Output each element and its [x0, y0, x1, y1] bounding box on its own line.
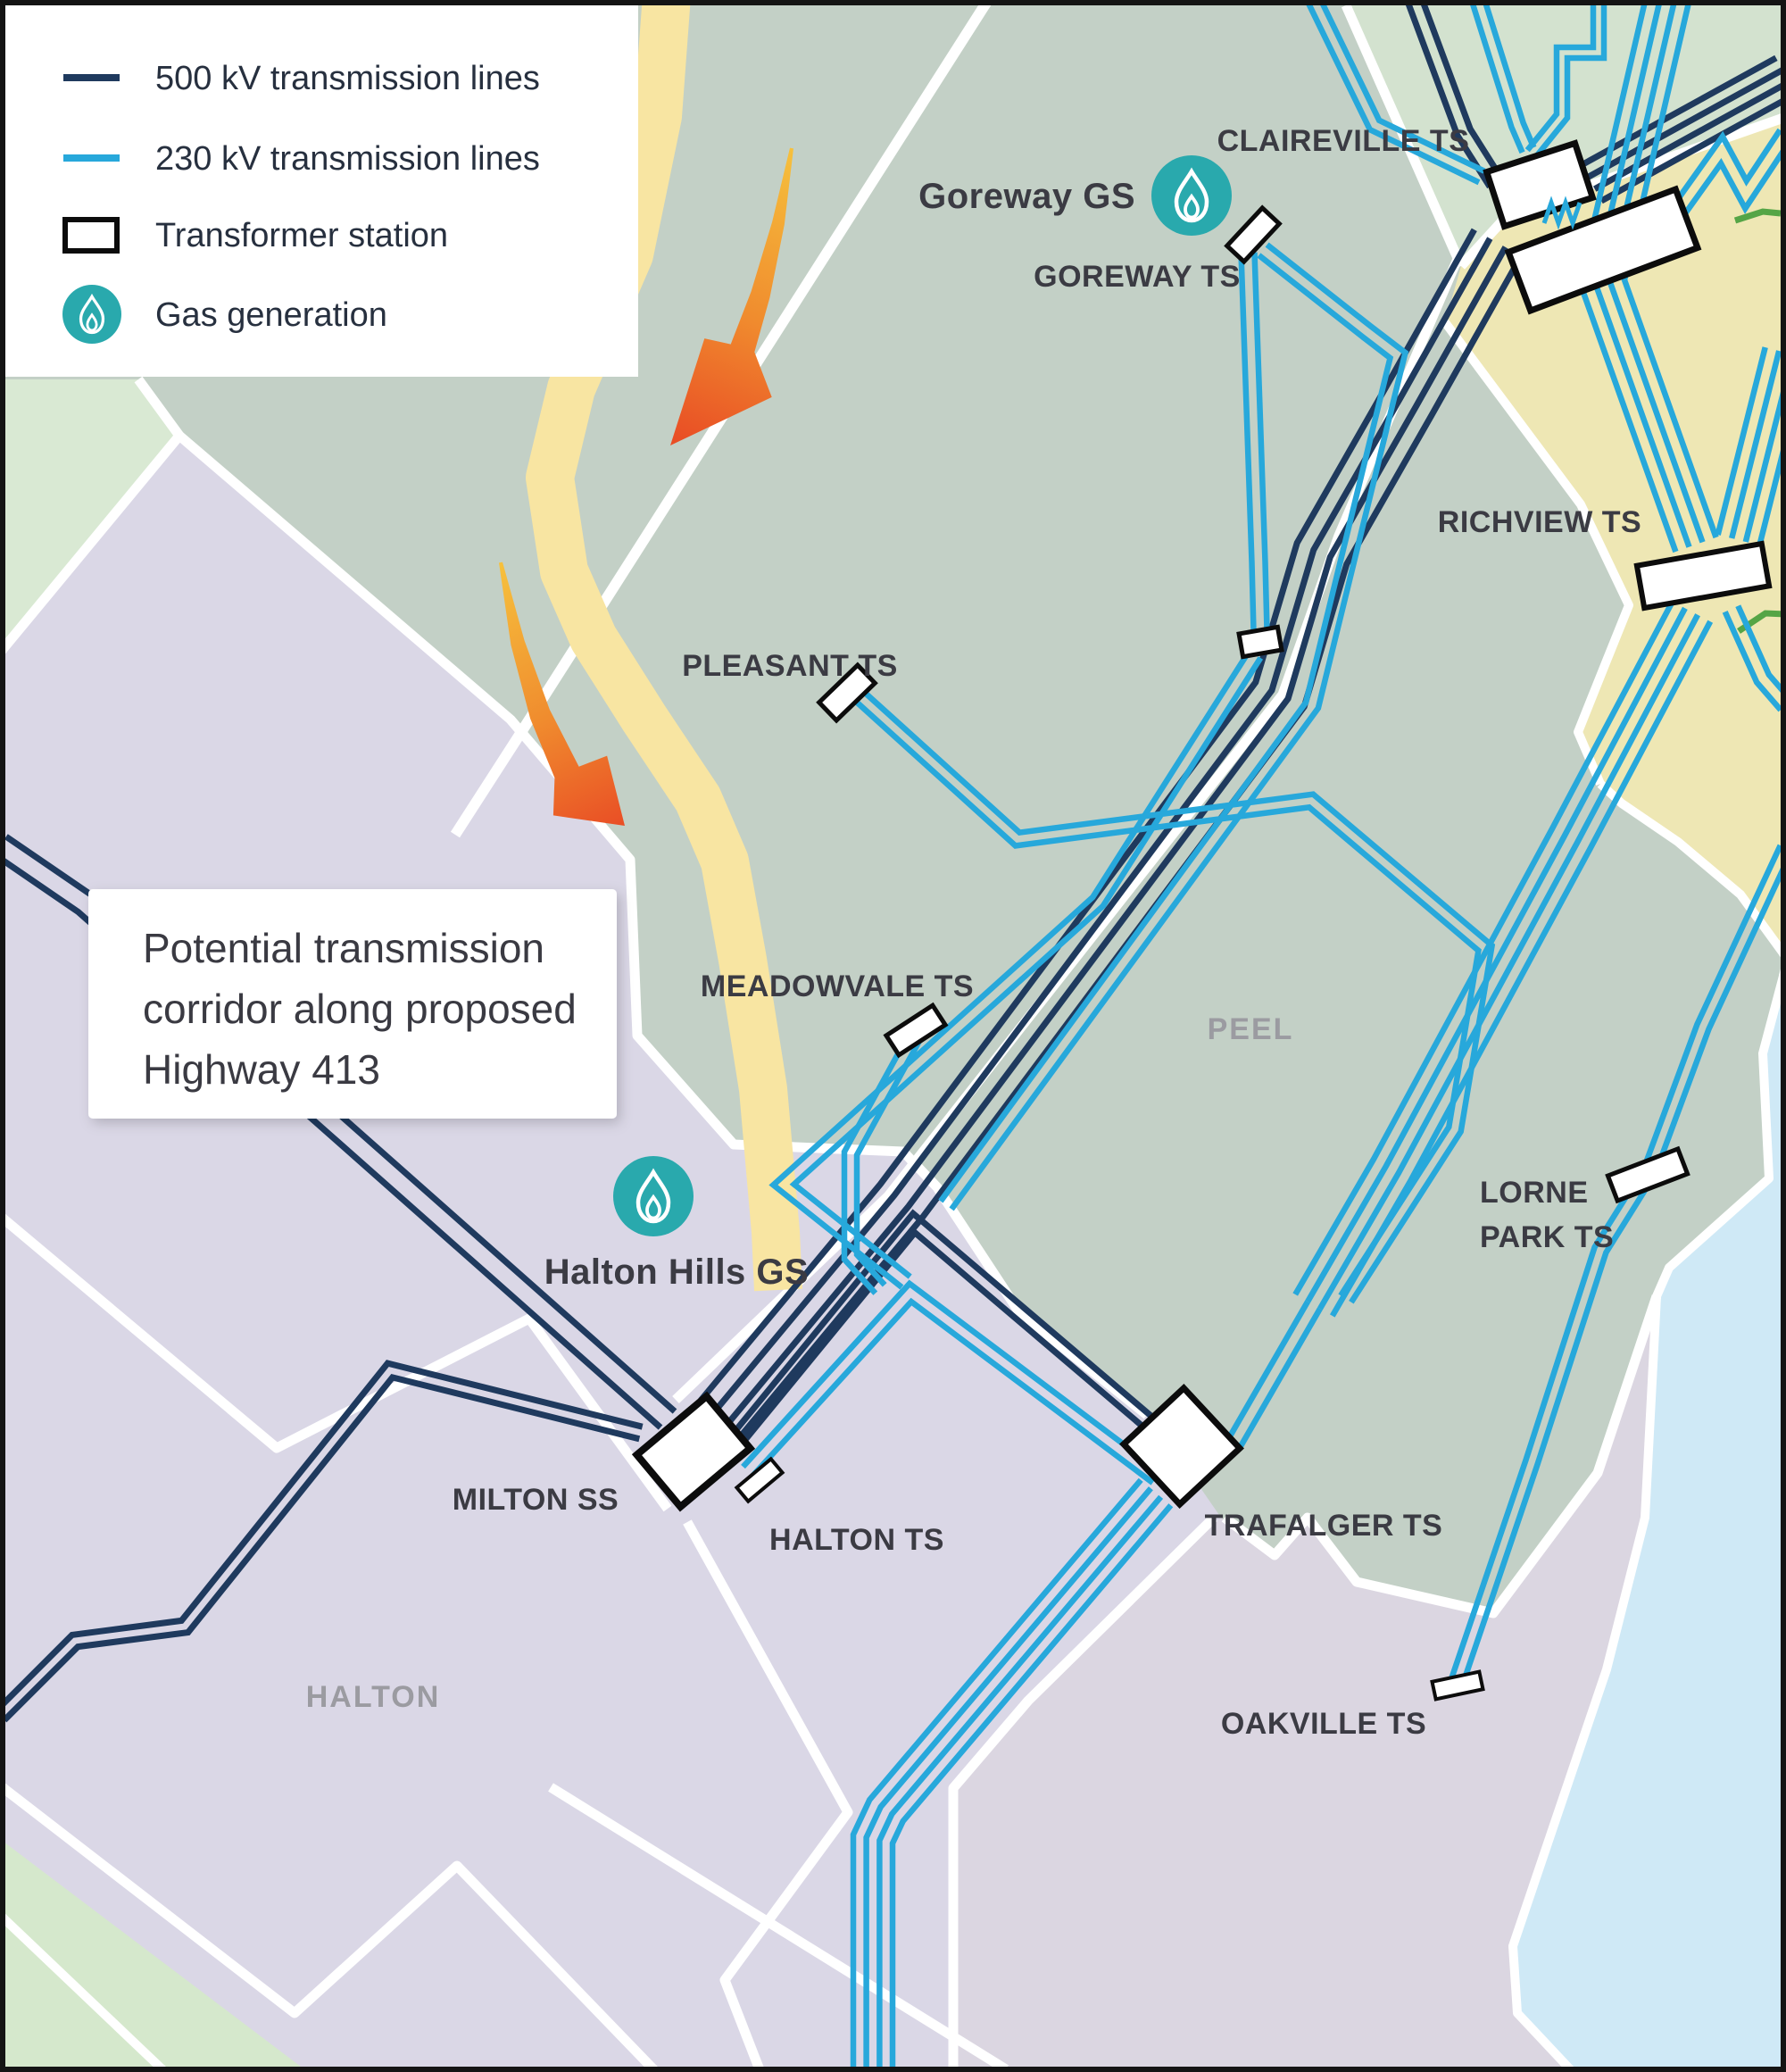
svg-text:Transformer station: Transformer station [155, 217, 448, 254]
svg-text:GOREWAY TS: GOREWAY TS [1034, 260, 1241, 294]
svg-text:PARK TS: PARK TS [1480, 1220, 1614, 1254]
svg-text:Goreway GS: Goreway GS [918, 177, 1135, 216]
svg-text:MILTON SS: MILTON SS [453, 1483, 619, 1517]
svg-text:HALTON TS: HALTON TS [769, 1523, 944, 1557]
svg-text:MEADOWVALE TS: MEADOWVALE TS [701, 969, 974, 1003]
svg-text:Highway 413: Highway 413 [143, 1046, 380, 1093]
svg-text:LORNE: LORNE [1480, 1176, 1589, 1210]
svg-text:Gas generation: Gas generation [155, 296, 387, 334]
svg-text:230 kV transmission lines: 230 kV transmission lines [155, 140, 540, 178]
svg-text:Halton Hills GS: Halton Hills GS [544, 1252, 809, 1292]
svg-text:PEEL: PEEL [1208, 1012, 1294, 1046]
svg-text:OAKVILLE TS: OAKVILLE TS [1221, 1707, 1426, 1741]
svg-text:TRAFALGER TS: TRAFALGER TS [1205, 1509, 1443, 1543]
svg-text:HALTON: HALTON [306, 1680, 441, 1714]
svg-text:CLAIREVILLE TS: CLAIREVILLE TS [1217, 124, 1470, 158]
svg-text:PLEASANT TS: PLEASANT TS [682, 649, 898, 683]
svg-text:corridor along proposed: corridor along proposed [143, 986, 577, 1032]
svg-text:Potential transmission: Potential transmission [143, 925, 544, 971]
svg-text:RICHVIEW TS: RICHVIEW TS [1438, 505, 1641, 539]
svg-text:500 kV transmission lines: 500 kV transmission lines [155, 60, 540, 97]
